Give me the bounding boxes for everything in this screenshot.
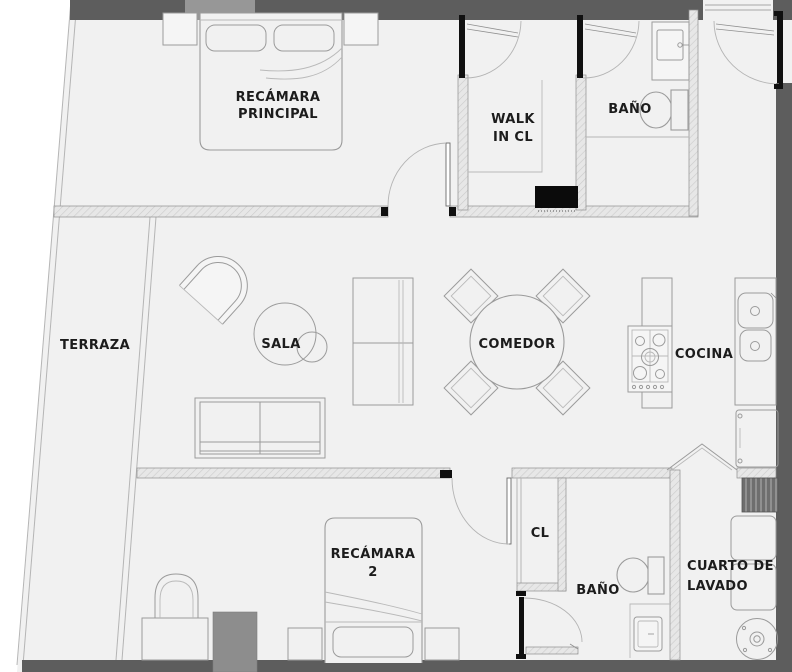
label-walk-in-2: IN CL: [493, 130, 533, 145]
label-cocina: COCINA: [675, 347, 733, 362]
right-wall: [776, 83, 792, 672]
wall-walkin-left: [458, 75, 468, 210]
wall-sala-bedroom2-right: [512, 468, 672, 478]
utility-shaft: [742, 478, 778, 512]
label-recamara-2-1: RECÁMARA: [331, 546, 416, 562]
bed-icon: [325, 518, 422, 663]
label-bano-2: BAÑO: [576, 582, 620, 598]
label-sala: SALA: [261, 337, 300, 352]
toilet-tank: [671, 90, 688, 130]
door-jamb: [440, 470, 452, 478]
wall-sala-bedroom2-left: [137, 468, 450, 478]
toilet-tank: [648, 557, 664, 594]
label-cuarto-lavado-1: CUARTO DE: [687, 559, 774, 574]
label-comedor: COMEDOR: [478, 337, 555, 352]
label-walk-in-1: WALK: [491, 112, 535, 127]
label-recamara-2-2: 2: [368, 565, 377, 580]
wall-bath2-laundry: [670, 470, 680, 660]
structural-column: [213, 612, 257, 672]
closet-wall-right: [558, 478, 566, 591]
door-leaf-second: [526, 647, 578, 654]
wall-bath1-right: [689, 10, 698, 216]
label-terraza: TERRAZA: [60, 338, 130, 353]
label-recamara-principal-2: PRINCIPAL: [238, 107, 318, 122]
label-cl: CL: [531, 526, 550, 541]
door-hinge: [774, 84, 783, 89]
label-cuarto-lavado-2: LAVADO: [687, 579, 748, 594]
shaft-black-box: [535, 186, 578, 208]
stove-icon: [628, 326, 672, 392]
door-hinge: [516, 591, 526, 596]
door-leaf: [459, 15, 465, 78]
door-leaf: [577, 15, 583, 78]
door-leaf: [507, 478, 511, 544]
floor-plan-page: RECÁMARA PRINCIPAL WALK IN CL BAÑO TERRA…: [0, 0, 792, 672]
door-leaf: [446, 143, 450, 206]
nightstand: [344, 13, 378, 45]
nightstand: [163, 13, 197, 45]
door-hinge: [516, 654, 526, 659]
label-recamara-principal-1: RECÁMARA: [236, 89, 321, 105]
door-jamb: [449, 207, 456, 216]
wall-bedroom1-left: [54, 206, 388, 217]
door-leaf: [777, 15, 783, 84]
bed-icon: [200, 13, 342, 150]
door-leaf: [519, 597, 524, 655]
door-jamb: [381, 207, 388, 216]
wall-laundry-top: [737, 468, 776, 478]
door-hinge: [774, 11, 783, 16]
label-bano-1: BAÑO: [608, 101, 652, 117]
toilet-icon: [617, 558, 649, 592]
floor-plan-drawing: RECÁMARA PRINCIPAL WALK IN CL BAÑO TERRA…: [0, 0, 792, 672]
